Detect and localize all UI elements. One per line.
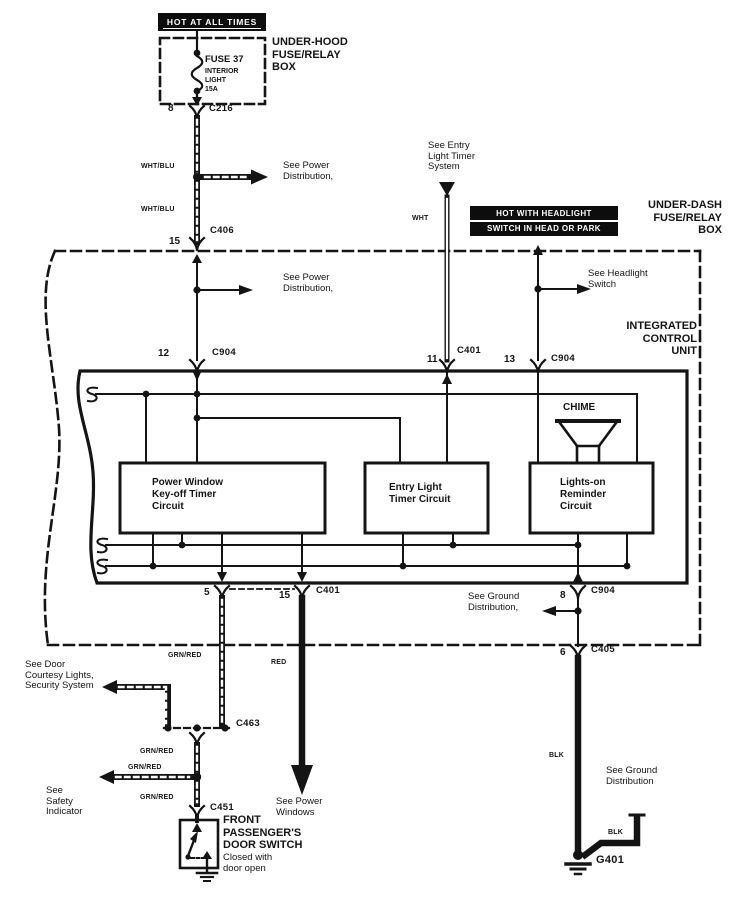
ref-safety-indicator: See Safety Indicator bbox=[46, 786, 82, 818]
pin-c406: 15 bbox=[169, 236, 180, 247]
wire-label-whtblu-b: WHT/BLU bbox=[141, 206, 175, 214]
pin-icu-11: 11 bbox=[427, 354, 438, 365]
connector-c401-bottom: C401 bbox=[316, 586, 340, 597]
lights-on-circuit-label: Lights-on Reminder Circuit bbox=[560, 477, 606, 513]
door-switch-note: Closed with door open bbox=[223, 853, 272, 874]
wiring-diagram: HOT AT ALL TIMES HOT WITH HEADLIGHT SWIT… bbox=[0, 0, 750, 897]
pin-icu-12: 12 bbox=[158, 348, 169, 359]
arrow-power-dist-1 bbox=[251, 170, 268, 185]
wire-label-wht: WHT bbox=[412, 215, 429, 223]
connector-c405: C405 bbox=[591, 645, 615, 656]
underdash-box-label: UNDER-DASH FUSE/RELAY BOX bbox=[622, 199, 722, 237]
offpage-triangle-entry-light bbox=[439, 182, 455, 196]
fuse-name: FUSE 37 bbox=[205, 55, 244, 66]
wire-label-blk-b: BLK bbox=[608, 829, 623, 837]
wire-door-courtesy bbox=[102, 680, 168, 725]
ref-power-windows: See Power Windows bbox=[276, 797, 322, 818]
wire-label-grnred-c: GRN/RED bbox=[128, 764, 162, 772]
arrow-power-dist-2 bbox=[239, 285, 253, 295]
arrow-ground-dist-1 bbox=[542, 606, 556, 616]
connector-c463: C463 bbox=[236, 719, 260, 730]
banner-hot-with-headlight-2: SWITCH IN HEAD OR PARK bbox=[470, 222, 618, 236]
wire-pin12-feed bbox=[197, 258, 239, 360]
wire-label-blk-a: BLK bbox=[549, 752, 564, 760]
schematic-artwork bbox=[0, 0, 750, 897]
wire-label-whtblu-a: WHT/BLU bbox=[141, 163, 175, 171]
connector-c406: C406 bbox=[210, 226, 234, 237]
pin-icu-15: 15 bbox=[279, 590, 290, 601]
banner-hot-with-headlight-1: HOT WITH HEADLIGHT bbox=[470, 206, 618, 220]
pin-c405: 6 bbox=[560, 647, 566, 658]
connector-g401: G401 bbox=[596, 854, 624, 866]
connector-c904-right: C904 bbox=[551, 354, 575, 365]
connector-c216: C216 bbox=[209, 104, 233, 115]
ref-ground-dist-2: See Ground Distribution bbox=[606, 766, 657, 787]
pin-fuse-out: 8 bbox=[168, 103, 174, 114]
wire-pin8-ground bbox=[556, 598, 578, 646]
wire-power-dist-branch-1 bbox=[203, 170, 268, 185]
arrow-door-courtesy bbox=[102, 680, 117, 694]
fuse-detail: INTERIOR LIGHT 15A bbox=[205, 68, 238, 94]
ref-ground-dist-1: See Ground Distribution, bbox=[468, 592, 519, 613]
banner-hot-at-all-times: HOT AT ALL TIMES bbox=[158, 13, 266, 31]
connector-symbol-c904-pin8 bbox=[571, 586, 585, 598]
banner-rule bbox=[163, 28, 261, 30]
connector-c451: C451 bbox=[210, 803, 234, 814]
power-window-circuit-label: Power Window Key-off Timer Circuit bbox=[152, 477, 223, 513]
wire-pin13-feed bbox=[538, 255, 577, 360]
wire-label-grnred-b: GRN/RED bbox=[140, 748, 174, 756]
arrow-safety-indicator bbox=[99, 770, 114, 784]
chime-speaker-icon bbox=[557, 421, 619, 462]
banner-hot-at-all-times-text: HOT AT ALL TIMES bbox=[167, 17, 257, 27]
ref-power-dist-1: See Power Distribution, bbox=[283, 161, 333, 182]
ref-door-courtesy: See Door Courtesy Lights, Security Syste… bbox=[25, 660, 94, 692]
wire-label-grnred-d: GRN/RED bbox=[140, 794, 174, 802]
icu-label: INTEGRATED CONTROL UNIT bbox=[597, 320, 697, 358]
wire-red bbox=[291, 598, 313, 795]
connector-c401-top: C401 bbox=[457, 346, 481, 357]
wire-label-grnred-a: GRN/RED bbox=[168, 652, 202, 660]
entry-light-circuit-label: Entry Light Timer Circuit bbox=[389, 482, 451, 506]
pin-icu-8: 8 bbox=[560, 590, 566, 601]
connector-c904-top: C904 bbox=[212, 348, 236, 359]
ref-power-dist-2: See Power Distribution, bbox=[283, 273, 333, 294]
wire-safety-indicator bbox=[99, 770, 191, 784]
door-switch-title: FRONT PASSENGER'S DOOR SWITCH bbox=[223, 814, 302, 852]
ground-symbol-door-switch bbox=[197, 868, 217, 881]
ref-headlight-switch: See Headlight Switch bbox=[588, 269, 648, 290]
ref-entry-light-timer: See Entry Light Timer System bbox=[428, 141, 475, 173]
arrow-power-windows bbox=[291, 765, 313, 795]
underhood-box-label: UNDER-HOOD FUSE/RELAY BOX bbox=[272, 36, 348, 74]
arrow-pin8-entry bbox=[573, 572, 583, 582]
chime-label: CHIME bbox=[563, 402, 595, 414]
arrow-pin5-exit bbox=[217, 572, 227, 582]
wire-label-red: RED bbox=[271, 659, 286, 667]
arrow-pin15-exit bbox=[297, 572, 307, 582]
pin-icu-5: 5 bbox=[204, 587, 210, 598]
connector-c904-bottom: C904 bbox=[591, 586, 615, 597]
pin-icu-13: 13 bbox=[504, 354, 515, 365]
door-switch-box bbox=[180, 820, 218, 868]
